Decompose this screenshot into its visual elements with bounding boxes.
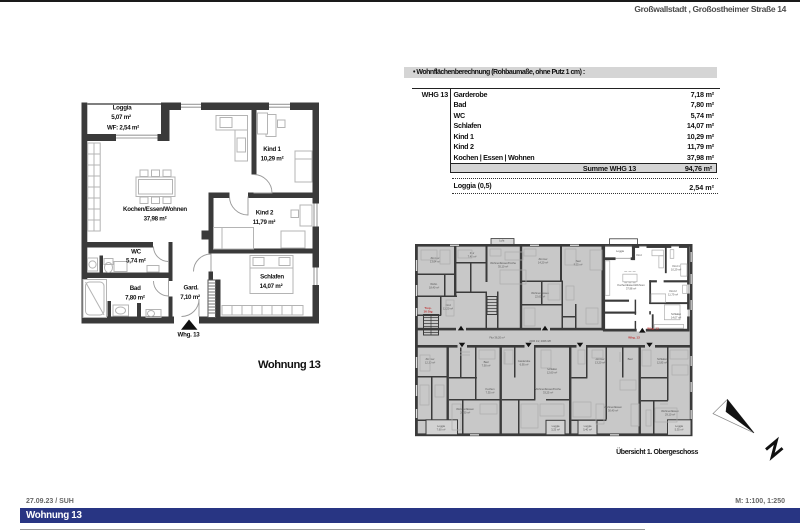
svg-text:35,10 m²: 35,10 m²	[498, 265, 508, 269]
svg-text:6,95 m²: 6,95 m²	[520, 363, 529, 367]
svg-text:7,35 m²: 7,35 m²	[486, 391, 495, 395]
svg-text:Whg. 13: Whg. 13	[178, 331, 201, 338]
svg-text:18,40 m²: 18,40 m²	[429, 286, 439, 290]
svg-text:Whg. 13: Whg. 13	[628, 336, 640, 340]
svg-text:WC: WC	[131, 249, 142, 256]
svg-text:Loggia: Loggia	[616, 249, 624, 253]
svg-text:5,74 m²: 5,74 m²	[126, 258, 146, 265]
svg-text:29,10 m²: 29,10 m²	[665, 413, 675, 417]
svg-text:10,29 m²: 10,29 m²	[261, 156, 284, 163]
svg-text:Bad: Bad	[628, 357, 633, 361]
svg-text:Kind: Kind	[636, 253, 642, 257]
svg-text:5,07 m²: 5,07 m²	[111, 114, 131, 121]
svg-text:8,25 m²: 8,25 m²	[574, 263, 583, 267]
svg-text:13,20 m²: 13,20 m²	[595, 361, 605, 365]
svg-text:11,79 m²: 11,79 m²	[253, 219, 276, 226]
svg-text:11,79 m²: 11,79 m²	[668, 293, 678, 297]
svg-text:5,35 m²: 5,35 m²	[675, 428, 684, 432]
svg-text:12,60 m²: 12,60 m²	[547, 371, 557, 375]
svg-text:7,10 m²: 7,10 m²	[180, 294, 200, 301]
svg-text:5,40 m²: 5,40 m²	[583, 428, 592, 432]
svg-text:37,98 m²: 37,98 m²	[144, 216, 167, 223]
svg-text:3,25 m²: 3,25 m²	[551, 428, 560, 432]
svg-text:16 Stg: 16 Stg	[423, 310, 432, 314]
svg-text:7,80 m²: 7,80 m²	[125, 295, 145, 302]
svg-text:7,60 m²: 7,60 m²	[437, 428, 446, 432]
svg-text:30,40 m²: 30,40 m²	[608, 409, 618, 413]
svg-text:11,20 m²: 11,20 m²	[443, 307, 453, 311]
svg-text:14,07 m²: 14,07 m²	[260, 283, 283, 290]
svg-text:33,25 m²: 33,25 m²	[543, 391, 553, 395]
svg-text:Kochen/Essen/Wohnen: Kochen/Essen/Wohnen	[123, 206, 187, 213]
svg-text:Bad: Bad	[130, 285, 141, 292]
svg-text:22,60 m²: 22,60 m²	[535, 295, 545, 299]
svg-text:Kind 1: Kind 1	[263, 146, 281, 153]
svg-text:37,98 m²: 37,98 m²	[626, 287, 636, 291]
svg-text:7,90 m²: 7,90 m²	[482, 364, 491, 368]
svg-text:Flur 36,20 m²: Flur 36,20 m²	[489, 336, 504, 340]
svg-text:14,20 m²: 14,20 m²	[538, 261, 548, 265]
svg-text:Schlafen: Schlafen	[260, 274, 284, 281]
svg-text:WF: 2,54 m²: WF: 2,54 m²	[107, 125, 139, 132]
svg-text:14,07 m²: 14,07 m²	[671, 316, 681, 320]
svg-text:Luftr.: Luftr.	[499, 239, 505, 243]
svg-text:28,30 m²: 28,30 m²	[460, 411, 470, 415]
svg-text:Whg. 13: Whg. 13	[647, 327, 659, 331]
svg-text:Loggia: Loggia	[113, 105, 133, 112]
svg-text:10,29 m²: 10,29 m²	[671, 268, 681, 272]
svg-text:Kind 2: Kind 2	[256, 210, 274, 217]
svg-text:12,85 m²: 12,85 m²	[657, 361, 667, 365]
svg-text:Gard.: Gard.	[184, 285, 199, 292]
svg-text:2006 1/2, 2006 3/8: 2006 1/2, 2006 3/8	[529, 339, 551, 343]
